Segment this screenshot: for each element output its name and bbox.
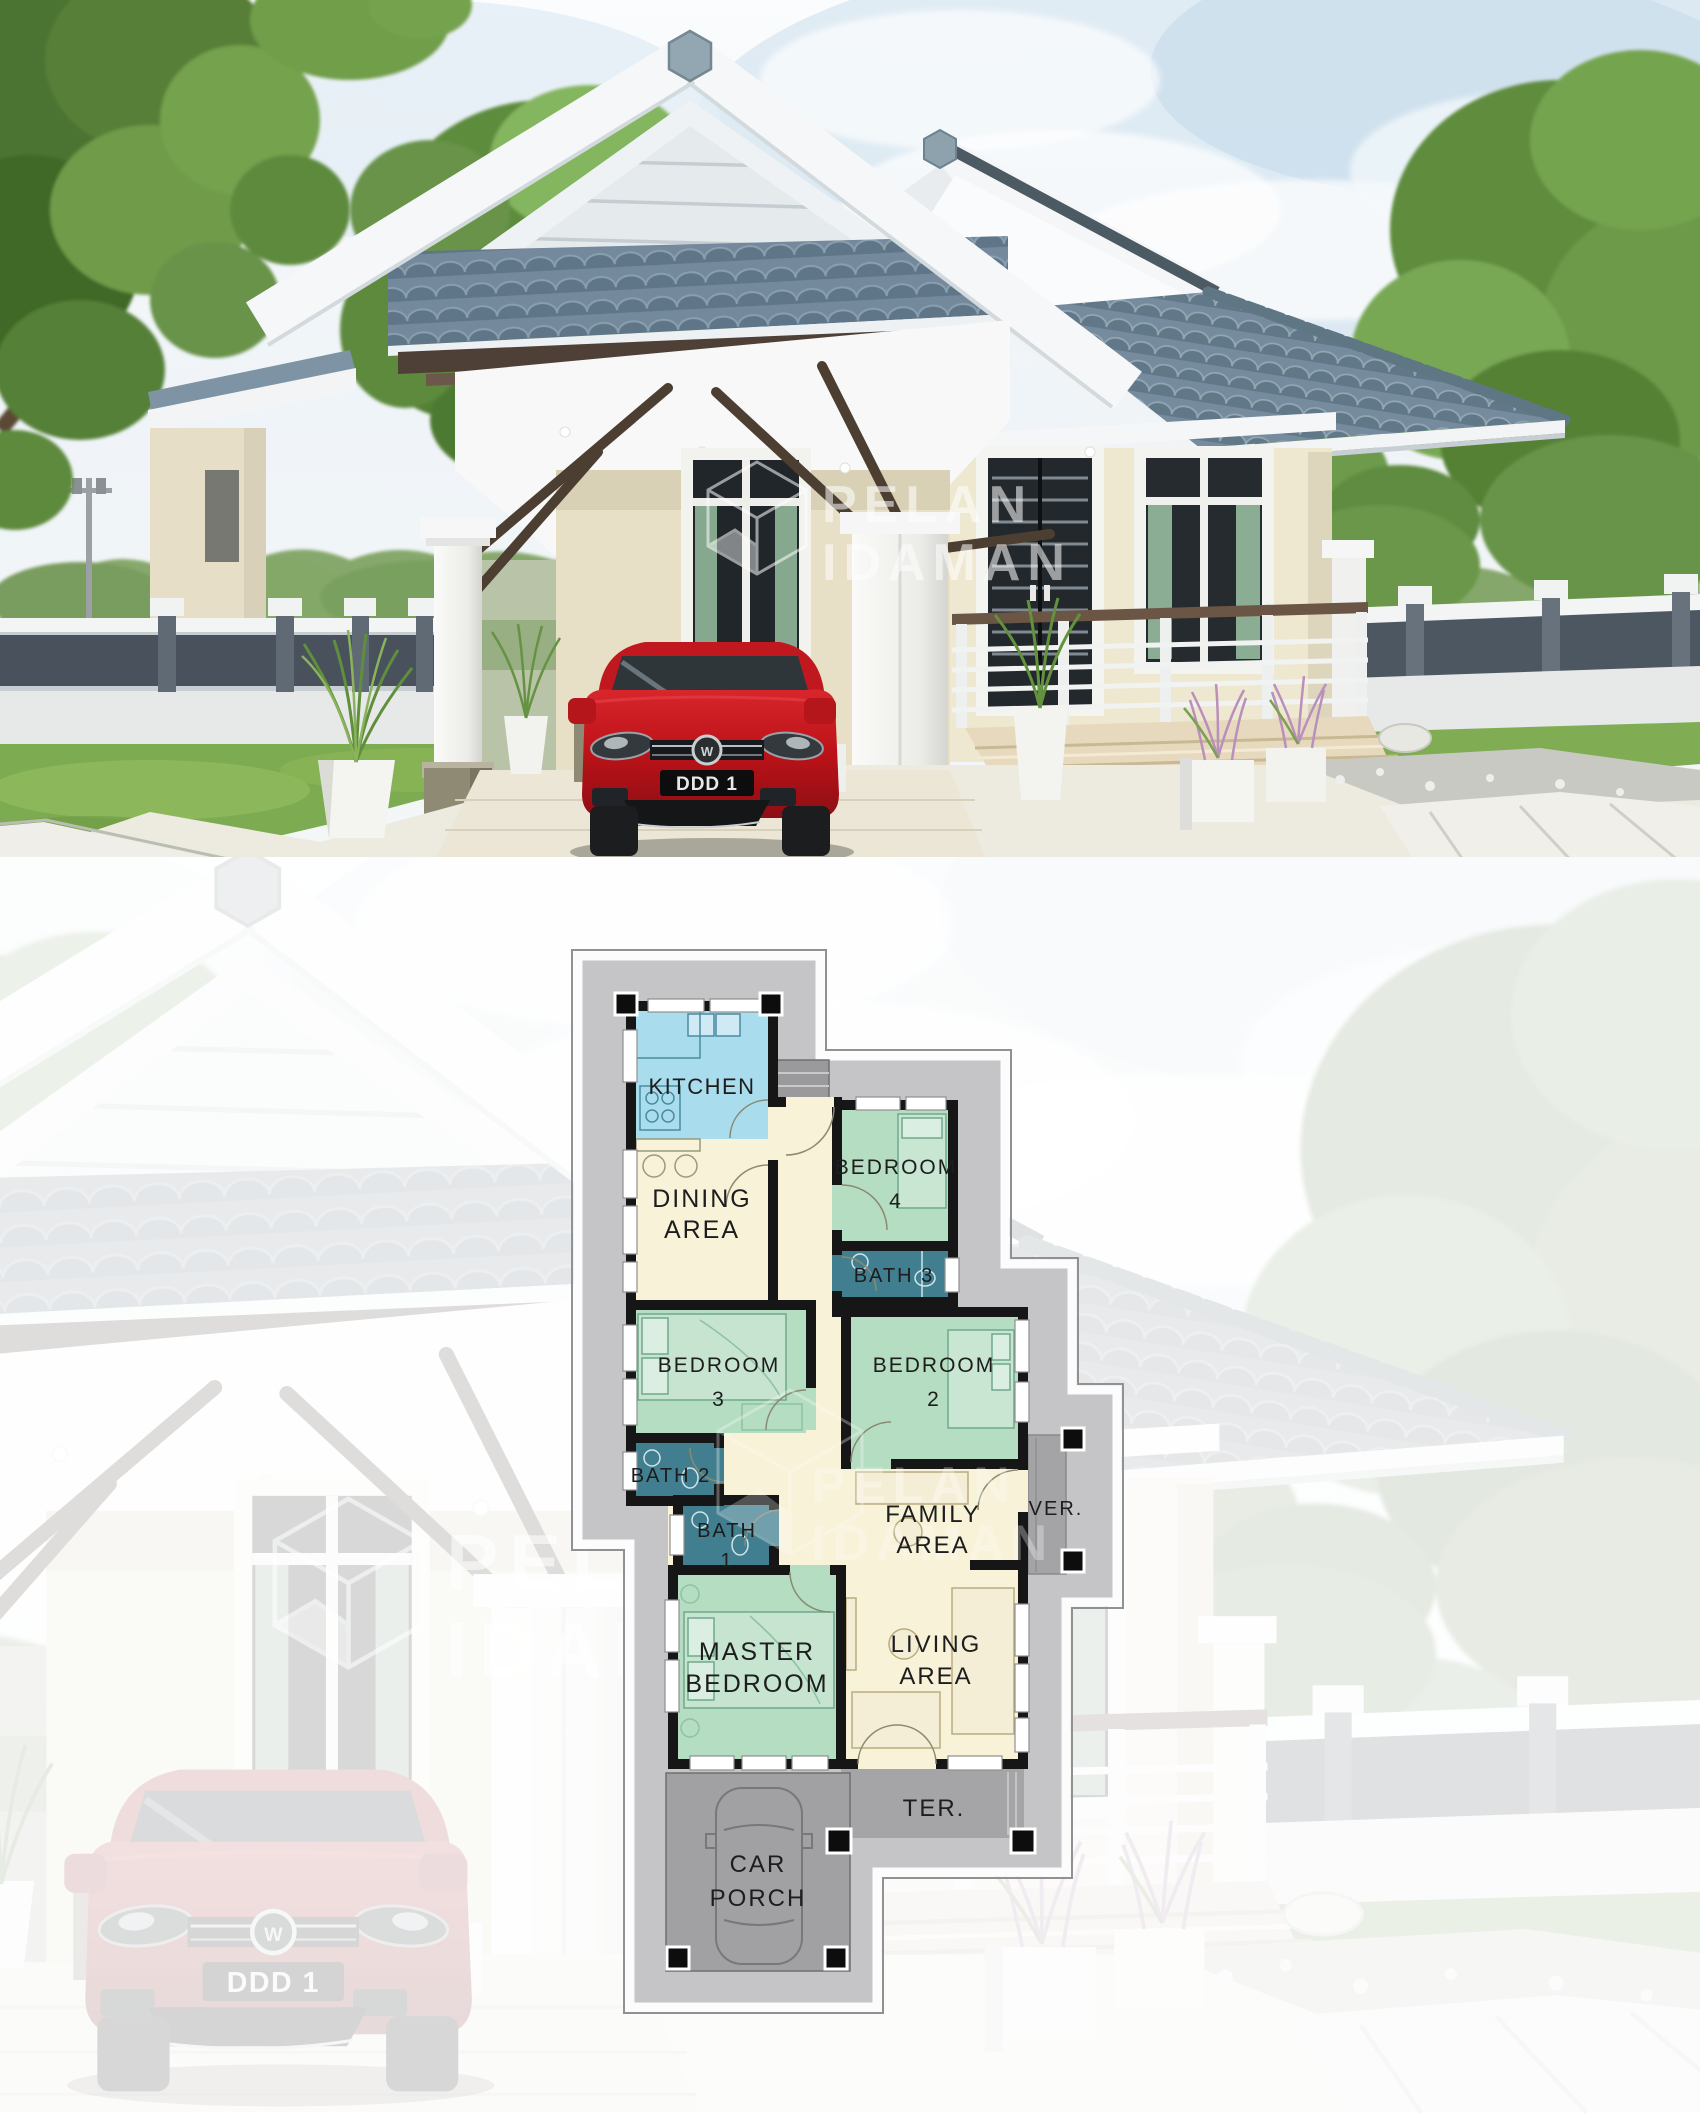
svg-text:BEDROOM: BEDROOM	[685, 1670, 828, 1698]
svg-text:AREA: AREA	[896, 1532, 969, 1559]
svg-text:PORCH: PORCH	[710, 1885, 807, 1912]
svg-text:TER.: TER.	[903, 1795, 966, 1822]
svg-text:BEDROOM: BEDROOM	[658, 1354, 781, 1377]
svg-text:4: 4	[889, 1190, 903, 1213]
svg-text:BEDROOM: BEDROOM	[873, 1354, 996, 1377]
svg-text:1: 1	[720, 1550, 733, 1572]
svg-text:MASTER: MASTER	[699, 1638, 815, 1666]
svg-text:BATH: BATH	[697, 1520, 757, 1542]
svg-text:DINING: DINING	[652, 1185, 752, 1213]
svg-text:2: 2	[927, 1388, 941, 1411]
svg-text:BEDROOM: BEDROOM	[835, 1156, 958, 1179]
svg-text:3: 3	[712, 1388, 726, 1411]
svg-text:BATH 3: BATH 3	[854, 1265, 935, 1287]
svg-text:CAR: CAR	[730, 1851, 787, 1878]
svg-text:FAMILY: FAMILY	[885, 1501, 981, 1528]
svg-text:LIVING: LIVING	[891, 1631, 982, 1658]
svg-text:VER.: VER.	[1029, 1498, 1084, 1520]
svg-text:AREA: AREA	[664, 1216, 740, 1244]
svg-text:AREA: AREA	[899, 1663, 972, 1690]
svg-text:BATH 2: BATH 2	[631, 1465, 712, 1487]
svg-text:KITCHEN: KITCHEN	[648, 1074, 755, 1099]
